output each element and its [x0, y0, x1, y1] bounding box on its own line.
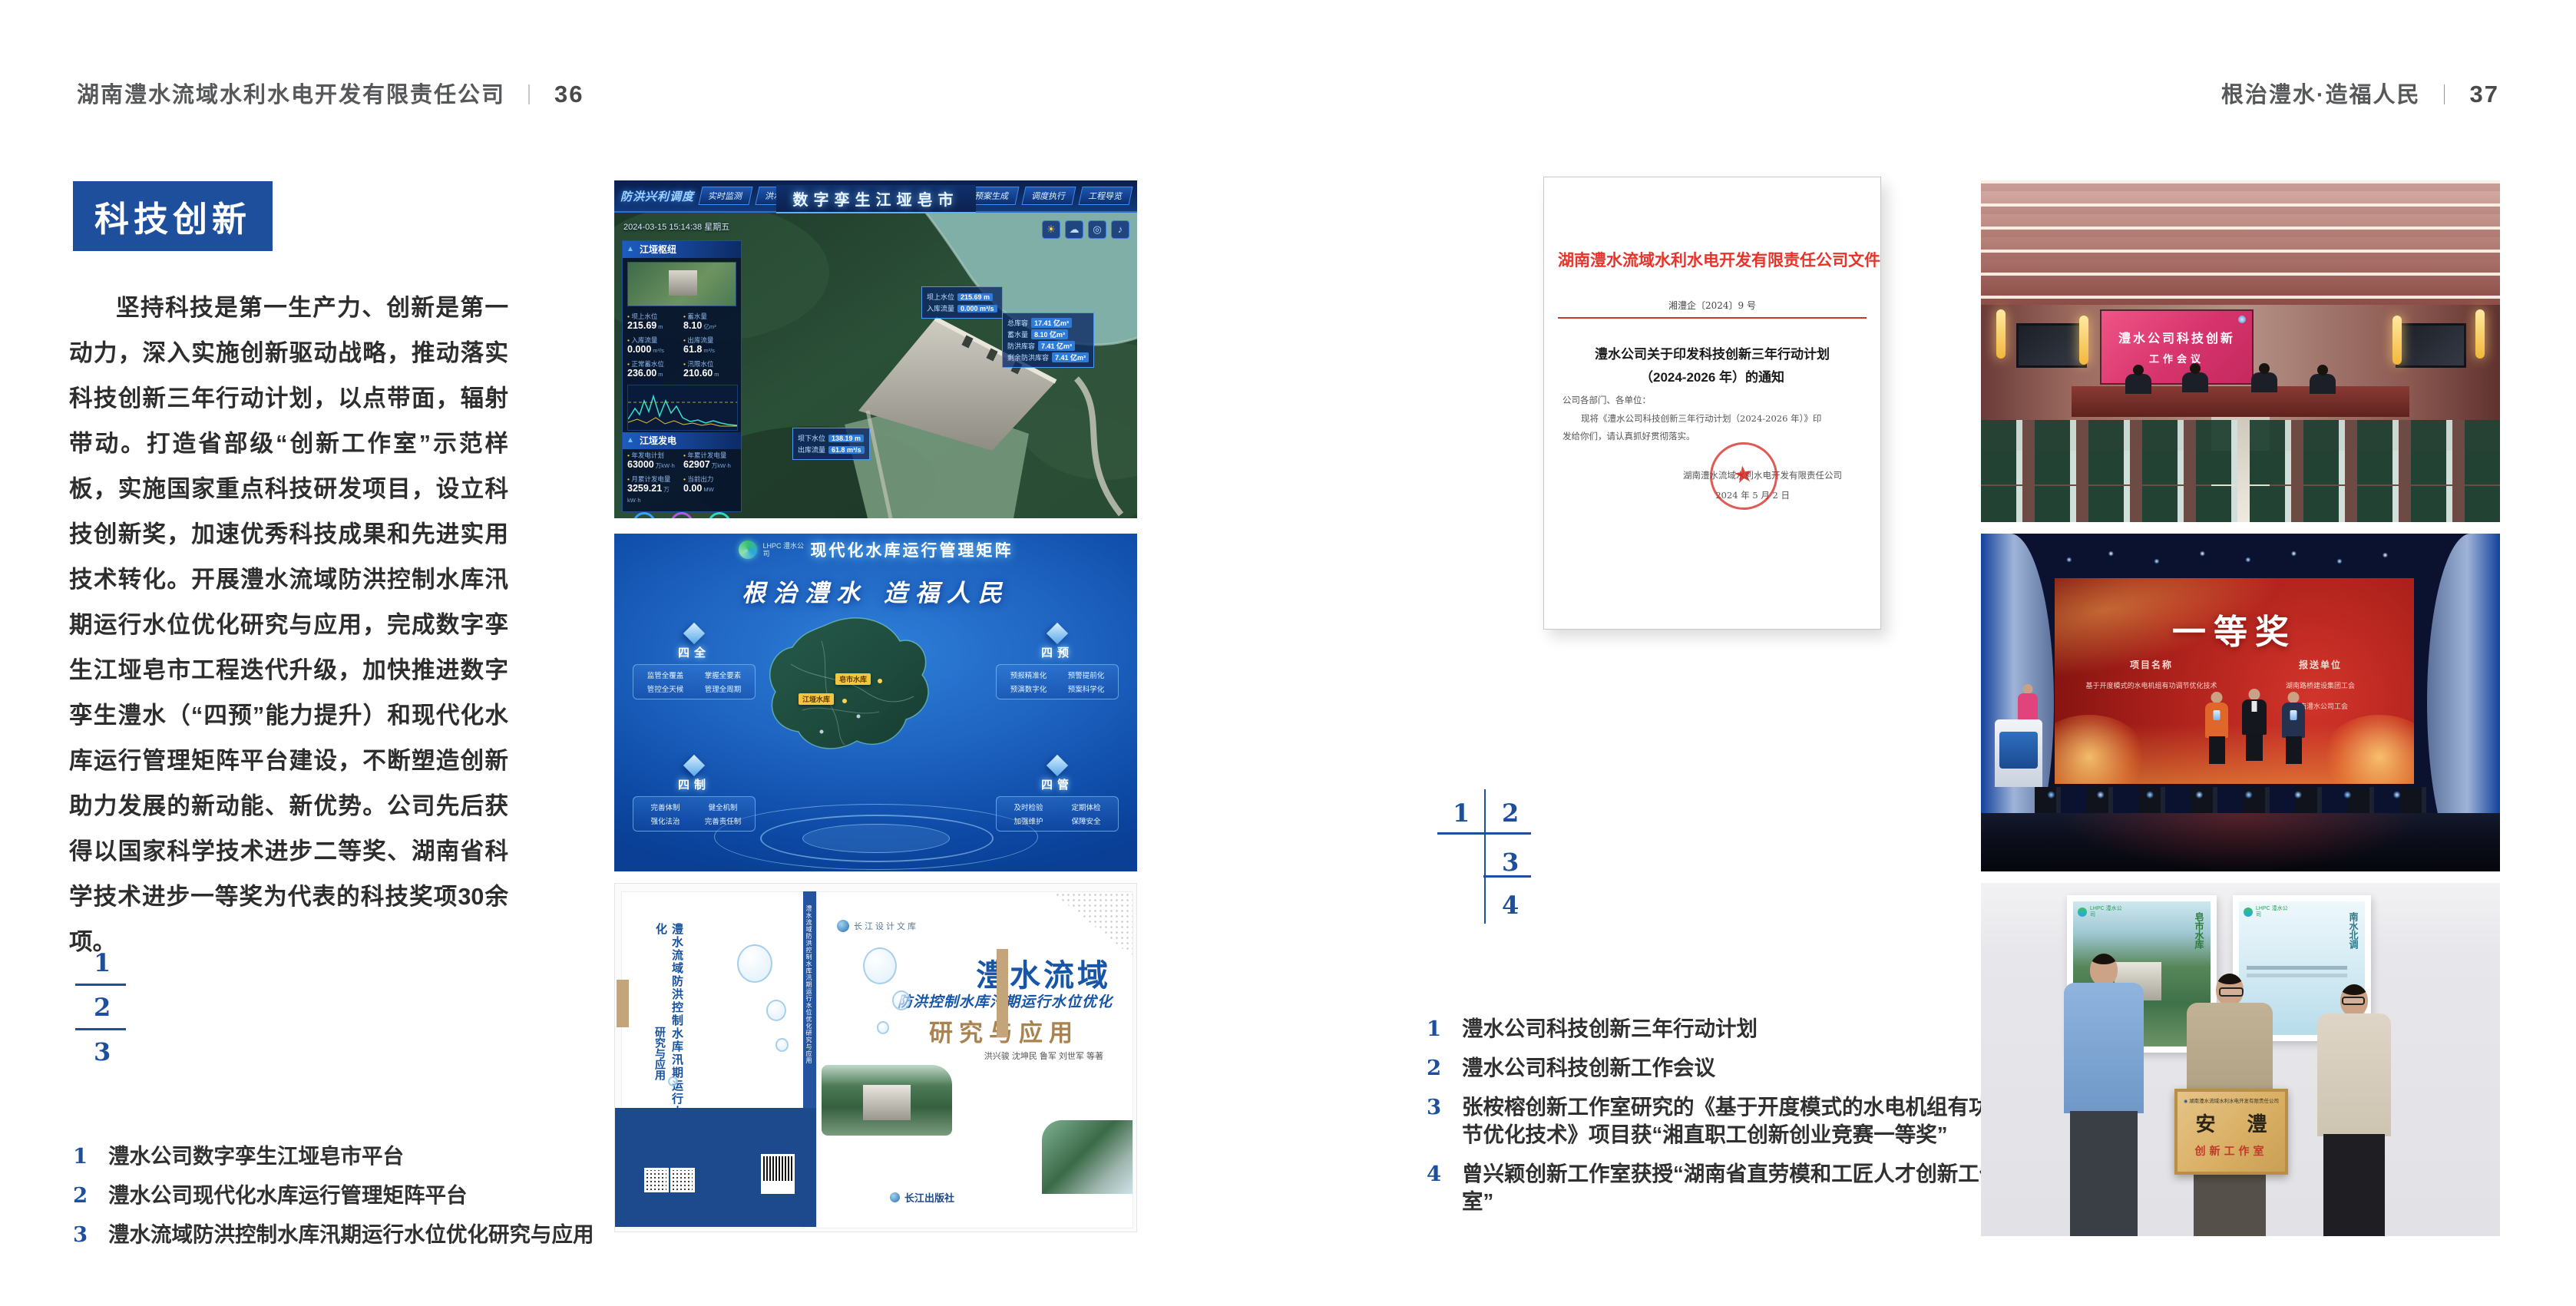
award-led-screen: 一等奖 项目名称 基于开度模式的水电机组有功调节优化技术 报送单位 湖南路桥建设… [2055, 578, 2414, 784]
wall-lamp [2079, 316, 2088, 365]
stage-table [2072, 386, 2409, 417]
figure-key-line [75, 1028, 126, 1030]
matrix-group-siguan: 四管 及时检验定期体检 加强维护保障安全 [996, 758, 1119, 832]
document-red-rule [1558, 317, 1867, 319]
caption-item: 3 澧水流域防洪控制水库汛期运行水位优化研究与应用 [73, 1221, 626, 1248]
audience-row [1981, 451, 2500, 484]
stage-front-lights [2035, 787, 2446, 813]
lhpc-logo-small: LHPC 澧水公司 [2078, 906, 2124, 918]
innovation-studio-plaque: 湖南澧水流域水利水电开发有限责任公司 安 澧 创新工作室 [2174, 1089, 2288, 1175]
figure-book-cover: 澧水流域防洪控制水库汛期运行水位优化研究与应用 澧水流域防洪控制水库汛期运行水位… [614, 883, 1137, 1232]
dashboard-system-label: 防洪兴利调度 [620, 188, 694, 204]
header-divider: ｜ [2435, 84, 2456, 107]
dashboard-title: 数字孪生江垭皂市 [776, 185, 976, 213]
matrix-group-siyu: 四预 预报精准化预警提前化 预演数字化预案科学化 [996, 626, 1119, 699]
figure-dashboard-screenshot: 防洪兴利调度 实时监测 洪水预报 防洪预演 暴雨预测 预案生成 调度执行 工程导… [614, 180, 1137, 518]
team-member-silhouette [2317, 984, 2391, 1236]
gauge-icon [708, 512, 731, 518]
caption-number: 4 [1427, 1160, 1443, 1215]
caption-item: 1 澧水公司科技创新三年行动计划 [1427, 1015, 2022, 1043]
figure-key-line [1437, 832, 1531, 835]
dashboard-datetime: 2024-03-15 15:14:38 星期五 [623, 220, 729, 233]
dam-thumbnail [627, 262, 736, 306]
figure-key-left: 1 2 3 [75, 948, 129, 1071]
matrix-icon [1047, 755, 1068, 776]
caption-number: 2 [1427, 1054, 1443, 1082]
header-right: 根治澧水·造福人民｜37 [2221, 77, 2499, 109]
panelist-silhouette [2251, 372, 2277, 392]
figure-key-right: 1 2 3 4 [1434, 789, 1536, 927]
map-callout-capacity: 总库容17.41 亿m³ 蓄水量8.10 亿m³ 防洪库容7.41 亿m³ 剩余… [1002, 312, 1094, 368]
figure-plaque-photo: LHPC 澧水公司 皂市水库 LHPC 澧水公司 南水北调 湖南澧水流域水利水电… [1981, 883, 2500, 1236]
figure-key-number: 2 [1502, 798, 1519, 828]
audience-row [1981, 486, 2500, 522]
cover-gold-tab [617, 980, 629, 1027]
gauge-icon [633, 512, 656, 518]
wall-screen [2016, 323, 2087, 368]
plaque-sub-text: 创新工作室 [2178, 1143, 2285, 1159]
weather-sun-icon [1042, 220, 1060, 239]
bubble-decoration [668, 1076, 678, 1086]
map-label-jiangya: 江垭水库 [799, 693, 834, 705]
figure-key-number: 1 [1453, 798, 1470, 828]
caption-item: 3 张桉榕创新工作室研究的《基于开度模式的水电机组有功调节优化技术》项目获“湘直… [1427, 1093, 2022, 1149]
caption-text: 澧水流域防洪控制水库汛期运行水位优化研究与应用 [108, 1221, 594, 1248]
page-number-left: 36 [554, 81, 584, 107]
official-seal-icon [1705, 438, 1781, 514]
caption-number: 3 [1427, 1093, 1443, 1149]
team-member-silhouette [2064, 954, 2144, 1236]
section-title: 科技创新 [73, 181, 273, 251]
caption-text: 曾兴颖创新工作室获授“湖南省直劳模和工匠人才创新工作室” [1462, 1160, 2022, 1215]
watershed-map [729, 610, 937, 802]
reflective-floor [1981, 813, 2500, 871]
water-level-chart [627, 385, 738, 431]
dam-photo [822, 1065, 952, 1136]
caption-text: 澧水公司现代化水库运行管理矩阵平台 [108, 1182, 468, 1209]
map-label-zaoshi: 皂市水库 [835, 673, 871, 685]
platform-header: LHPC 澧水公司 现代化水库运行管理矩阵 [614, 538, 1137, 561]
wall-lamp [2392, 316, 2402, 365]
meeting-screen: 澧水公司科技创新 工作会议 [2100, 309, 2254, 385]
lhpc-logo-text: LHPC 澧水公司 [763, 542, 805, 557]
weather-cloud-icon [1065, 220, 1083, 239]
document-title: 澧水公司关于印发科技创新三年行动计划 （2024-2026 年）的通知 [1544, 343, 1880, 389]
series-logo: 长江设计文库 [837, 920, 918, 932]
qr-code [644, 1168, 669, 1192]
panel-title-jiangya-power: 江垭发电 [623, 432, 741, 449]
award-project-column: 项目名称 基于开度模式的水电机组有功调节优化技术 [2067, 658, 2236, 701]
unit-gauges [623, 509, 741, 518]
audience-row [1981, 420, 2500, 451]
caption-text: 张桉榕创新工作室研究的《基于开度模式的水电机组有功调节优化技术》项目获“湘直职工… [1462, 1093, 2022, 1149]
figure-key-number: 1 [94, 948, 111, 977]
figure-key-number: 2 [94, 993, 111, 1022]
publisher-logo-icon [837, 920, 849, 932]
caption-text: 澧水公司数字孪生江垭皂市平台 [108, 1142, 404, 1170]
panelist-silhouette [2125, 374, 2151, 394]
company-name: 湖南澧水流域水利水电开发有限责任公司 [77, 83, 505, 107]
figure-official-document: 湖南澧水流域水利水电开发有限责任公司文件 湘澧企〔2024〕9 号 澧水公司关于… [1543, 177, 1881, 630]
tab-realtime-monitor: 实时监测 [698, 187, 752, 205]
tab-project-tour: 工程导览 [1078, 187, 1133, 205]
publisher-mark: 长江出版社 [890, 1190, 954, 1205]
caption-text: 澧水公司科技创新工作会议 [1462, 1054, 1715, 1082]
dashboard-toolbar [1042, 220, 1129, 239]
bubble-decoration [737, 944, 772, 983]
page-number-right: 37 [2470, 81, 2499, 107]
plaque-main-text: 安 澧 [2178, 1109, 2285, 1137]
plaque-company-line: 湖南澧水流域水利水电开发有限责任公司 [2178, 1096, 2285, 1104]
platform-slogan: 根治澧水 造福人民 [614, 574, 1137, 608]
figure-key-number: 3 [94, 1037, 111, 1066]
book-authors: 洪兴骏 沈坤民 鲁军 刘世军 等著 [984, 1050, 1103, 1062]
body-paragraph: 坚持科技是第一生产力、创新是第一动力，深入实施创新驱动战略，推动落实科技创新三年… [69, 286, 508, 965]
matrix-icon [683, 755, 705, 776]
dashboard-left-panel: 江垭枢纽 坝上水位215.69m 蓄水量8.10亿m³ 入库流量0.000m³/… [622, 240, 742, 512]
caption-item: 2 澧水公司现代化水库运行管理矩阵平台 [73, 1182, 626, 1209]
caption-number: 1 [73, 1142, 90, 1170]
figure-key-number: 4 [1502, 891, 1519, 920]
bubble-decoration [892, 990, 911, 1010]
captions-right: 1 澧水公司科技创新三年行动计划 2 澧水公司科技创新工作会议 3 张桉榕创新工… [1427, 1015, 2022, 1227]
caption-item: 4 曾兴颖创新工作室获授“湖南省直劳模和工匠人才创新工作室” [1427, 1160, 2022, 1215]
matrix-icon [683, 623, 705, 644]
bubble-decoration [775, 1038, 789, 1052]
isbn-barcode [761, 1154, 795, 1194]
map-callout-upstream: 坝上水位215.69 m 入库流量0.000 m³/s [921, 286, 1003, 319]
caption-number: 3 [73, 1221, 90, 1248]
slogan-text: 根治澧水·造福人民 [2221, 83, 2421, 107]
book-front-cover: 长江设计文库 澧水流域 防洪控制水库汛期运行水位优化 研究与应用 洪兴骏 沈坤民… [816, 891, 1133, 1228]
hub-stats: 坝上水位215.69m 蓄水量8.10亿m³ 入库流量0.000m³/s 出库流… [623, 310, 741, 383]
matrix-group-sizhi: 四制 完善体制健全机制 强化法治完善责任制 [633, 758, 756, 832]
wall-lamp [2475, 309, 2485, 359]
award-title: 一等奖 [2055, 604, 2414, 653]
figure-meeting-photo: 澧水公司科技创新 工作会议 [1981, 180, 2500, 522]
radar-icon [1088, 220, 1106, 239]
map-callout-downstream: 坝下水位138.19 m 出库流量61.8 m³/s [792, 428, 870, 460]
golden-glow [2322, 715, 2414, 784]
document-number: 湘澧企〔2024〕9 号 [1544, 299, 1880, 312]
caption-text: 澧水公司科技创新三年行动计划 [1462, 1015, 1758, 1043]
figure-award-photo: 一等奖 项目名称 基于开度模式的水电机组有功调节优化技术 报送单位 湖南路桥建设… [1981, 534, 2500, 871]
bubble-decoration [877, 1021, 889, 1034]
figure-key-number: 3 [1502, 848, 1519, 877]
figure-key-line [75, 984, 126, 986]
panelist-silhouette [2310, 374, 2336, 394]
tab-dispatch-execute: 调度执行 [1021, 187, 1076, 205]
caption-number: 1 [1427, 1015, 1443, 1043]
header-left: 湖南澧水流域水利水电开发有限责任公司｜36 [77, 77, 584, 109]
dam-photo-small [1042, 1120, 1133, 1194]
document-body: 现将《澧水公司科技创新三年行动计划（2024-2026 年）》印 发给你们，请认… [1562, 410, 1862, 445]
matrix-group-siquan: 四全 监管全覆盖掌握全要素 管控全天候管理全周期 [633, 626, 756, 699]
meeting-ceiling [1981, 180, 2500, 305]
cover-gold-tab [997, 949, 1008, 1037]
wall-screen [2396, 323, 2466, 368]
document-header: 湖南澧水流域水利水电开发有限责任公司文件 [1558, 248, 1867, 271]
panel-title-jiangya-hub: 江垭枢纽 [623, 241, 741, 258]
publisher-logo-icon [890, 1192, 900, 1202]
host-podium [1995, 719, 2042, 787]
bubble-decoration [863, 947, 897, 984]
lhpc-logo-small: LHPC 澧水公司 [2244, 906, 2290, 918]
panelist-silhouette [2182, 372, 2208, 392]
power-stats: 年发电计划63000万kW·h 年累计发电量62907万kW·h 月累计发电量3… [623, 449, 741, 509]
lhpc-logo-icon [739, 541, 757, 559]
document-signer: 湖南澧水流域水利水电开发有限责任公司 [1544, 469, 1842, 481]
platform-title: 现代化水库运行管理矩阵 [811, 538, 1014, 561]
caption-item: 2 澧水公司科技创新工作会议 [1427, 1054, 2022, 1082]
wall-lamp [1996, 309, 2006, 359]
ripple-ring [802, 824, 950, 853]
stage-truss-lights [2050, 544, 2431, 575]
document-salutation: 公司各部门、各单位： [1562, 394, 1651, 406]
caption-item: 1 澧水公司数字孪生江垭皂市平台 [73, 1142, 626, 1170]
alert-icon [1111, 220, 1129, 239]
matrix-icon [1047, 623, 1068, 644]
figure-key-line [1484, 789, 1486, 924]
bubble-decoration [766, 1000, 786, 1021]
golden-glow [2055, 715, 2147, 784]
qr-code [670, 1168, 695, 1192]
captions-left: 1 澧水公司数字孪生江垭皂市平台 2 澧水公司现代化水库运行管理矩阵平台 3 澧… [73, 1142, 626, 1260]
header-divider: ｜ [519, 84, 541, 107]
figure-key-line [1483, 875, 1531, 878]
gauge-icon [670, 512, 693, 518]
caption-number: 2 [73, 1182, 90, 1209]
figure-platform-screenshot: LHPC 澧水公司 现代化水库运行管理矩阵 根治澧水 造福人民 皂市水库 江垭水… [614, 534, 1137, 871]
